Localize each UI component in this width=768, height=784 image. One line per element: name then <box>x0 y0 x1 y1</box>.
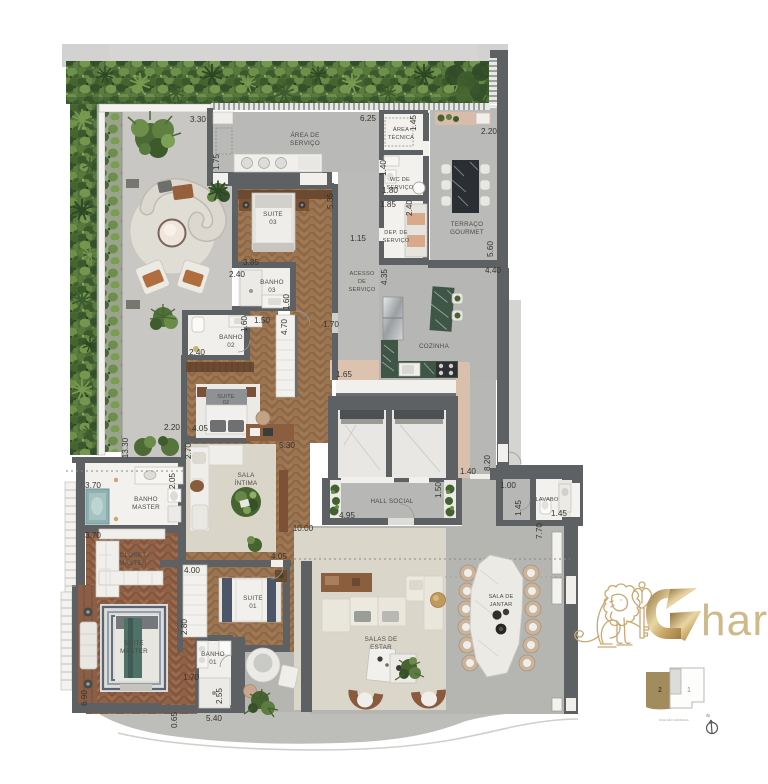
svg-text:GOURMET: GOURMET <box>450 229 484 236</box>
svg-text:6.90: 6.90 <box>80 690 89 706</box>
svg-text:5.35: 5.35 <box>326 193 335 209</box>
svg-text:MASTER: MASTER <box>132 504 160 511</box>
svg-text:4.70: 4.70 <box>280 319 289 335</box>
svg-text:1.15: 1.15 <box>350 234 366 243</box>
svg-text:2.05: 2.05 <box>168 473 177 489</box>
svg-text:5.30: 5.30 <box>279 441 295 450</box>
svg-text:BANHO: BANHO <box>219 334 243 341</box>
svg-text:0.65: 0.65 <box>170 712 179 728</box>
svg-text:01: 01 <box>249 603 257 610</box>
svg-text:1.80: 1.80 <box>382 186 398 195</box>
svg-text:1.45: 1.45 <box>514 500 523 516</box>
svg-text:BANHO: BANHO <box>260 279 284 286</box>
svg-text:4.00: 4.00 <box>184 566 200 575</box>
svg-text:01: 01 <box>209 659 217 666</box>
svg-text:4.05: 4.05 <box>192 424 208 433</box>
svg-text:SALAS DE: SALAS DE <box>365 636 398 643</box>
svg-text:1.60: 1.60 <box>240 316 249 332</box>
svg-text:ÁREA DE: ÁREA DE <box>290 130 319 139</box>
svg-text:TÉCNICA: TÉCNICA <box>388 134 414 141</box>
svg-text:ÍNTIMA: ÍNTIMA <box>235 478 258 487</box>
svg-text:LAVABO: LAVABO <box>535 497 558 503</box>
svg-text:CLOSET: CLOSET <box>120 552 147 559</box>
svg-text:7.70: 7.70 <box>535 523 544 539</box>
svg-text:2: 2 <box>658 687 662 694</box>
svg-text:1.40: 1.40 <box>379 160 388 176</box>
svg-text:3.85: 3.85 <box>243 258 259 267</box>
svg-text:3.70: 3.70 <box>85 481 101 490</box>
svg-text:1.75: 1.75 <box>212 154 221 170</box>
svg-text:COZINHA: COZINHA <box>419 343 450 350</box>
svg-text:02: 02 <box>227 342 235 349</box>
svg-text:JANTAR: JANTAR <box>490 602 513 608</box>
svg-text:MASTER: MASTER <box>120 648 148 655</box>
svg-text:4.95: 4.95 <box>339 511 355 520</box>
svg-text:ÁREA: ÁREA <box>393 126 409 133</box>
svg-text:1: 1 <box>687 687 691 694</box>
svg-text:1.50: 1.50 <box>434 482 443 498</box>
svg-text:DEP. DE: DEP. DE <box>384 230 407 236</box>
svg-text:03: 03 <box>269 219 277 226</box>
svg-text:MASTER: MASTER <box>119 560 147 567</box>
svg-text:2.40: 2.40 <box>229 270 245 279</box>
svg-text:SALA: SALA <box>237 472 255 479</box>
svg-text:02: 02 <box>223 400 230 406</box>
svg-text:8.20: 8.20 <box>483 455 492 471</box>
svg-text:1.40: 1.40 <box>460 467 476 476</box>
svg-text:SERVIÇO: SERVIÇO <box>383 238 410 244</box>
svg-text:har: har <box>701 596 768 645</box>
svg-text:4.05: 4.05 <box>271 552 287 561</box>
svg-text:2.20: 2.20 <box>481 127 497 136</box>
svg-text:3.30: 3.30 <box>190 115 206 124</box>
svg-text:1.45: 1.45 <box>409 115 418 131</box>
svg-text:N: N <box>706 713 709 718</box>
svg-text:1.00: 1.00 <box>500 481 516 490</box>
svg-text:2.20: 2.20 <box>164 423 180 432</box>
svg-text:WC DE: WC DE <box>390 177 410 183</box>
svg-text:1.65: 1.65 <box>336 370 352 379</box>
svg-text:2.70: 2.70 <box>184 443 193 459</box>
svg-text:10.00: 10.00 <box>293 524 314 533</box>
svg-text:2.55: 2.55 <box>215 688 224 704</box>
svg-text:1.85: 1.85 <box>380 200 396 209</box>
svg-text:TERRAÇO: TERRAÇO <box>451 221 484 228</box>
svg-text:SALA DE: SALA DE <box>488 594 513 600</box>
svg-text:HALL SOCIAL: HALL SOCIAL <box>370 498 413 505</box>
svg-text:5.60: 5.60 <box>486 241 495 257</box>
svg-text:BANHO: BANHO <box>201 651 225 658</box>
svg-text:2.80: 2.80 <box>180 619 189 635</box>
svg-text:2.40: 2.40 <box>405 200 414 216</box>
svg-text:1.50: 1.50 <box>254 316 270 325</box>
svg-text:BANHO: BANHO <box>134 496 158 503</box>
svg-text:4.35: 4.35 <box>380 269 389 285</box>
svg-text:ACESSO: ACESSO <box>350 271 375 277</box>
svg-text:6.25: 6.25 <box>360 114 376 123</box>
svg-text:1.70: 1.70 <box>183 673 199 682</box>
svg-text:4.40: 4.40 <box>485 266 501 275</box>
svg-text:SERVIÇO: SERVIÇO <box>290 140 320 147</box>
svg-text:RUA SÃO GONZAGA: RUA SÃO GONZAGA <box>659 717 688 722</box>
svg-text:DE: DE <box>358 279 366 285</box>
svg-text:13.30: 13.30 <box>121 437 130 458</box>
svg-text:03: 03 <box>268 287 276 294</box>
svg-text:5.40: 5.40 <box>206 714 222 723</box>
svg-text:ESTAR: ESTAR <box>370 644 392 651</box>
svg-text:1.45: 1.45 <box>551 509 567 518</box>
svg-text:3.70: 3.70 <box>85 531 101 540</box>
svg-text:SERVIÇO: SERVIÇO <box>349 287 376 293</box>
svg-text:SUITE: SUITE <box>243 595 263 602</box>
svg-text:1.60: 1.60 <box>282 294 291 310</box>
svg-text:SUITE: SUITE <box>124 640 144 647</box>
svg-text:SUITE: SUITE <box>263 211 283 218</box>
svg-text:1.70: 1.70 <box>323 320 339 329</box>
svg-text:2.40: 2.40 <box>189 348 205 357</box>
